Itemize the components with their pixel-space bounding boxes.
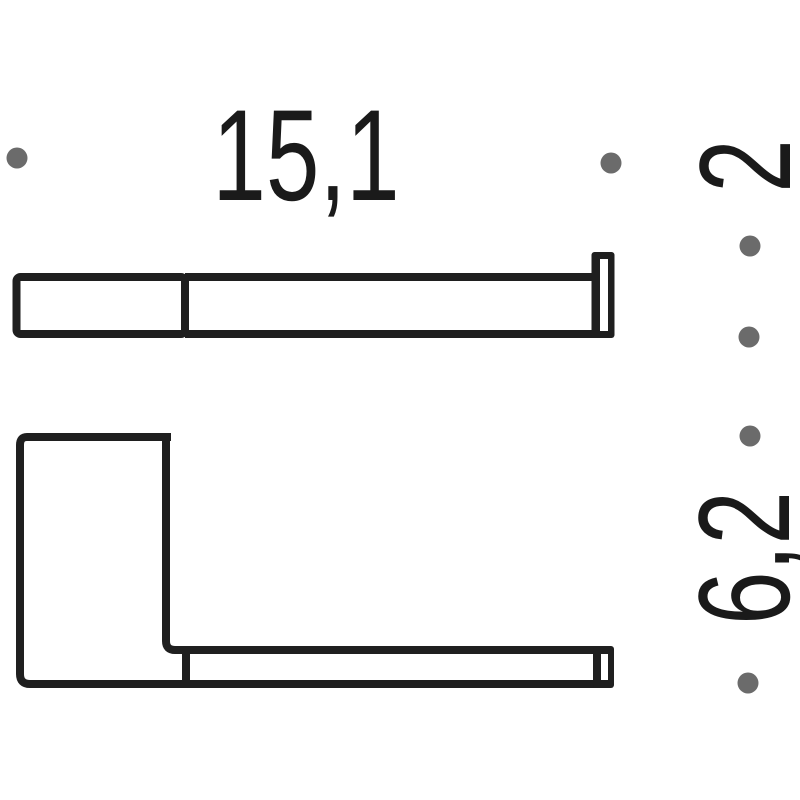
length-dim-right-dot (601, 153, 622, 174)
technical-drawing-canvas: 15,1 2 6,2 (0, 0, 800, 800)
side-view-end-cap-slot (600, 259, 608, 331)
front-view-end-cap-slot (601, 654, 608, 680)
depth-dim-bottom-dot (738, 673, 759, 694)
technical-drawing-page: 15,1 2 6,2 (0, 0, 800, 800)
height-dimension-label: 2 (673, 139, 800, 192)
depth-dimension-label: 6,2 (672, 491, 800, 625)
length-dimension-label: 15,1 (212, 83, 399, 229)
height-dim-bottom-dot (739, 327, 760, 348)
height-dim-top-dot (740, 236, 761, 257)
depth-dim-top-dot (740, 426, 761, 447)
length-dim-left-dot (7, 148, 28, 169)
